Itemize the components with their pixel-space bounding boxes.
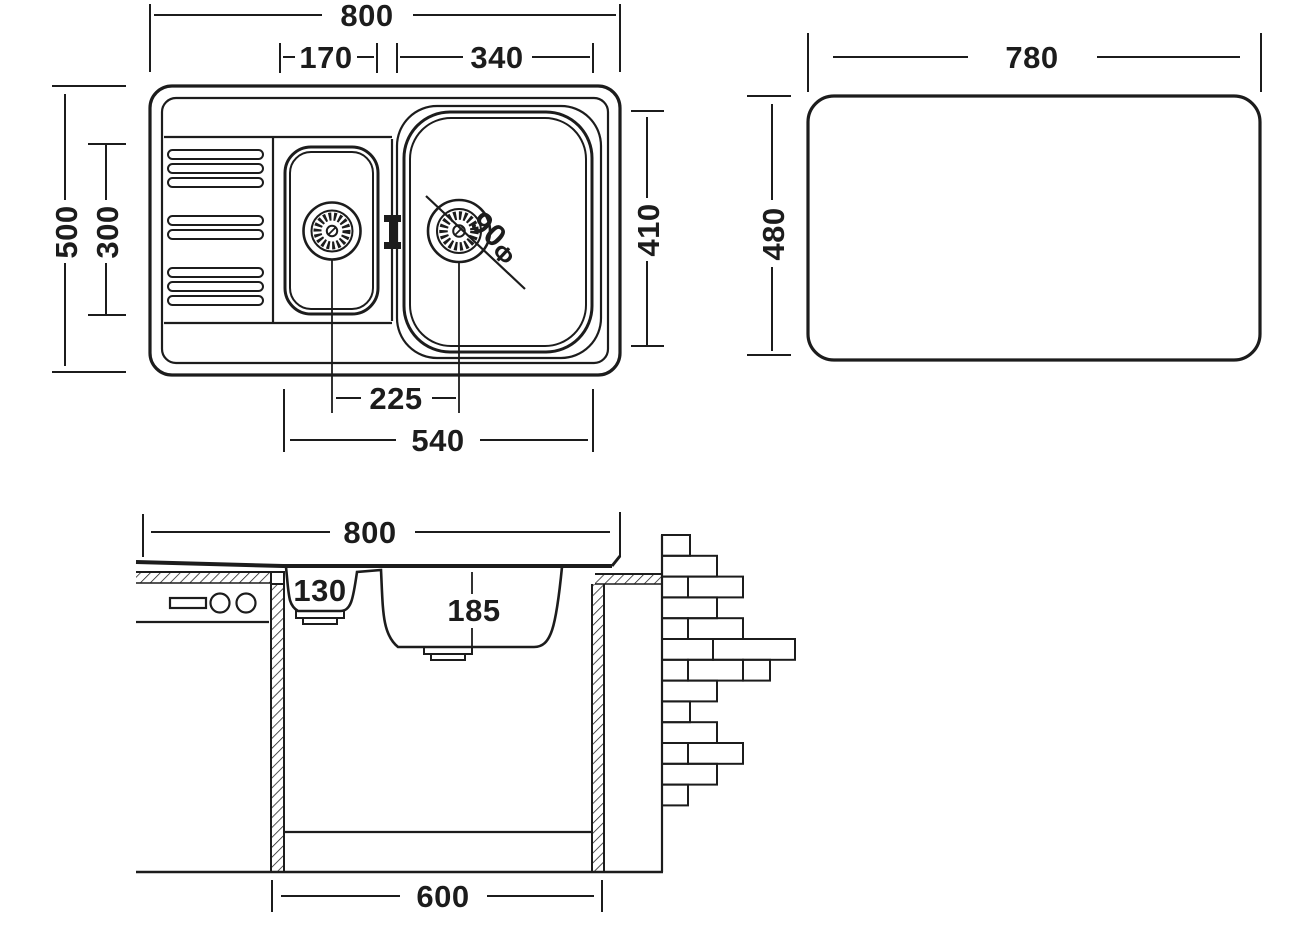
brick [688, 577, 743, 598]
dim-label-800-section: 800 [343, 515, 396, 550]
small-drain-strainer [304, 203, 361, 260]
dim-label-130: 130 [293, 573, 346, 608]
dim-label-500: 500 [49, 205, 84, 258]
cutout-outline [808, 96, 1260, 360]
brick [688, 743, 743, 764]
sink-top-view: 90Φ [150, 86, 620, 413]
knob-symbol [237, 594, 256, 613]
divider-clip-detail [384, 215, 401, 249]
dim-cabinet-width: 600 [272, 879, 602, 914]
dim-label-170: 170 [299, 40, 352, 75]
dim-label-410: 410 [631, 203, 666, 256]
brick [688, 660, 743, 681]
countertop-left [136, 572, 272, 583]
brick [662, 722, 717, 743]
brick [662, 743, 688, 764]
brick [662, 597, 717, 618]
dim-large-bowl-length: 410 [631, 111, 666, 346]
dim-cutout-width: 780 [808, 33, 1261, 92]
brick [662, 639, 713, 660]
cabinet-front-symbols [136, 594, 269, 623]
drainboard [164, 137, 392, 323]
sink-rim-right-hook [612, 556, 620, 566]
brick [662, 681, 717, 702]
cabinet-left-wall [271, 572, 284, 872]
brick [662, 577, 688, 598]
technical-drawing-page: 90Φ 800 170 340 500 [0, 0, 1304, 927]
handle-symbol [170, 598, 206, 608]
dim-small-bowl-length: 300 [88, 144, 126, 315]
dim-cutout-height: 480 [747, 96, 791, 355]
dim-large-bowl-width: 340 [397, 40, 593, 75]
dim-label-600: 600 [416, 879, 469, 914]
sink-section-view: 800 [136, 512, 795, 914]
brick [688, 618, 743, 639]
dim-label-300: 300 [90, 205, 125, 258]
dim-label-225: 225 [369, 381, 422, 416]
dim-label-340: 340 [470, 40, 523, 75]
brick [662, 535, 690, 556]
countertop-hatch [136, 572, 272, 583]
dim-large-bowl-depth: 185 [447, 572, 500, 646]
brick [662, 660, 688, 681]
brick [713, 639, 795, 660]
large-bowl-drain-fitting [424, 647, 472, 660]
sink-rim-profile [136, 562, 612, 566]
dim-label-780: 780 [1005, 40, 1058, 75]
countertop-cutout-view: 780 480 [747, 33, 1261, 360]
countertop-right [595, 574, 661, 584]
drainboard-ribs [168, 150, 263, 305]
brick [662, 556, 717, 577]
dim-label-800-top: 800 [340, 0, 393, 33]
brick [662, 764, 717, 785]
dim-section-overall-width: 800 [143, 512, 620, 557]
brick [662, 701, 690, 722]
dim-drain-spacing: 225 [336, 381, 456, 416]
countertop-hatch [595, 574, 661, 584]
cabinet-right-wall [592, 584, 604, 872]
brick [662, 785, 688, 806]
sink-dimension-drawing: 90Φ 800 170 340 500 [0, 0, 1304, 927]
dim-label-540: 540 [411, 423, 464, 458]
knob-symbol [211, 594, 230, 613]
dim-overall-width: 800 [150, 0, 620, 72]
dim-small-bowl-width: 170 [280, 40, 377, 75]
top-view-dimensions: 800 170 340 500 300 410 [49, 0, 666, 458]
brick-wall [662, 535, 795, 872]
dim-label-185: 185 [447, 593, 500, 628]
dim-label-480: 480 [756, 207, 791, 260]
brick [662, 618, 688, 639]
brick [743, 660, 770, 681]
wall-top-cap [271, 572, 284, 584]
small-bowl-drain-fitting [296, 611, 344, 624]
dim-bowls-span: 540 [284, 389, 593, 458]
